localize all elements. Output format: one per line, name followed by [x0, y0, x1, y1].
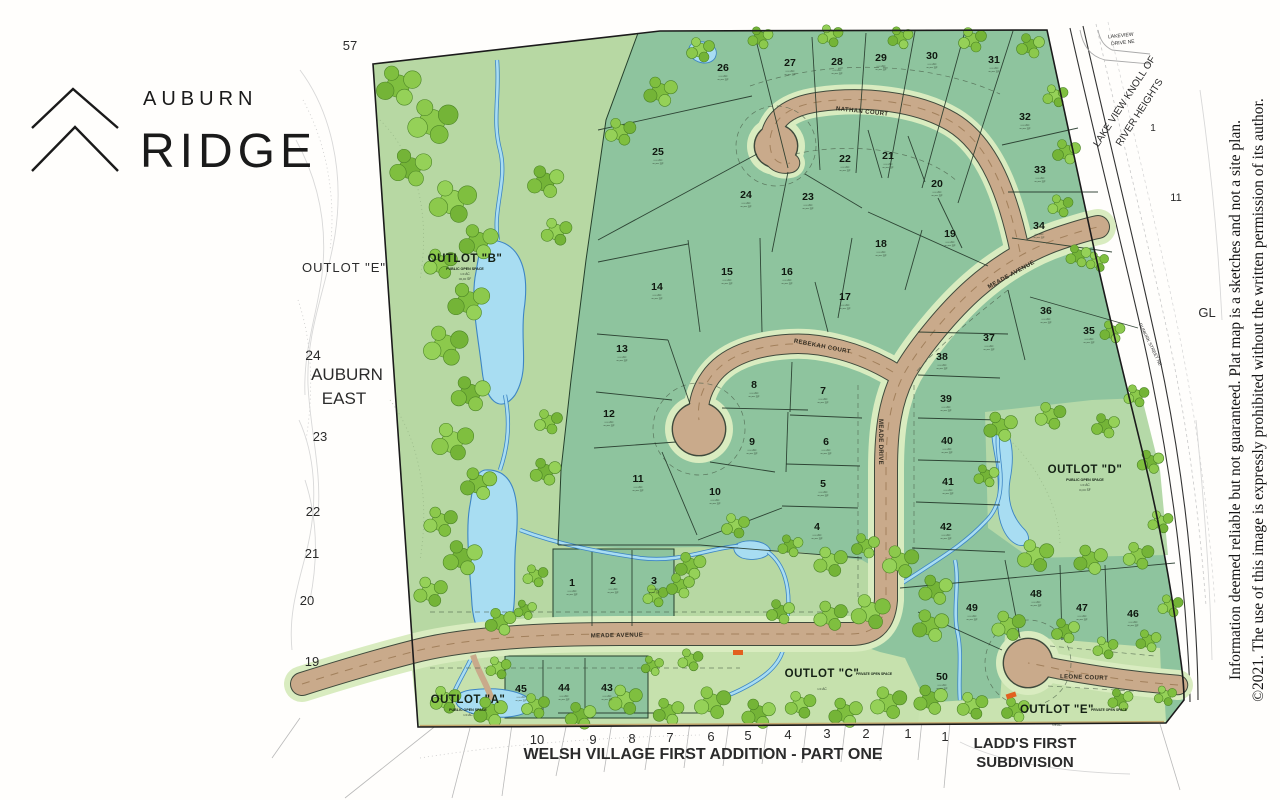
- lot-number: 25: [652, 146, 664, 158]
- outlot-note: PUBLIC OPEN SPACE: [449, 708, 487, 712]
- lot-number: 27: [784, 57, 796, 69]
- lot-number: 5: [820, 478, 826, 490]
- lot-area-hint: ••,••• SF: [875, 68, 886, 72]
- lot-area-hint: ••,••• SF: [1034, 180, 1045, 184]
- lot-number: 16: [781, 266, 793, 278]
- adjacent-label: 20: [300, 593, 314, 608]
- adjacent-label: 24: [305, 347, 321, 363]
- outlot-area-hint: •.•• AC: [463, 713, 473, 717]
- lot-number: 12: [603, 408, 615, 420]
- lot-area-hint: ••,••• SF: [648, 591, 659, 595]
- lot-area-hint: ••,••• SF: [802, 207, 813, 211]
- adjacent-label: 1: [904, 726, 911, 741]
- lot-area-hint: ••,••• SF: [1033, 236, 1044, 240]
- adjacent-label: WELSH VILLAGE FIRST ADDITION - PART ONE: [523, 746, 882, 763]
- adjacent-label: 23: [313, 429, 327, 444]
- lot-area-hint: ••,••• SF: [709, 502, 720, 506]
- outlot-label: OUTLOT "B": [428, 253, 503, 265]
- street-label: MEADE AVENUE: [591, 633, 644, 640]
- disclaimer: Information deemed reliable but not guar…: [1224, 0, 1280, 800]
- lot-number: 28: [831, 56, 843, 68]
- lot-area-hint: ••,••• SF: [784, 73, 795, 77]
- logo-word-auburn: AUBURN: [143, 88, 257, 111]
- adjacent-label: 22: [306, 504, 320, 519]
- lot-area-hint: ••,••• SF: [558, 698, 569, 702]
- outlot-note: PRIVATE OPEN SPACE: [856, 672, 893, 676]
- lot-area-hint: ••,••• SF: [936, 367, 947, 371]
- adjacent-label: 57: [343, 38, 357, 53]
- adjacent-label: 2: [862, 726, 869, 741]
- outlot-note: PUBLIC OPEN SPACE: [1066, 478, 1104, 482]
- lot-area-hint: ••,••• SF: [632, 489, 643, 493]
- lot-area-hint: ••,••• SF: [942, 492, 953, 496]
- lot-area-hint: ••,••• SF: [817, 401, 828, 405]
- outlot-area-hint: •.•• AC: [817, 687, 827, 691]
- adjacent-label: 4: [784, 727, 791, 742]
- logo-word-ridge: RIDGE: [140, 124, 317, 179]
- lot-area-hint: ••,••• SF: [839, 169, 850, 173]
- adjacent-label: 21: [305, 546, 319, 561]
- lot-area-hint: ••,••• SF: [926, 66, 937, 70]
- lot-number: 19: [944, 228, 956, 240]
- lot-number: 2: [610, 575, 616, 587]
- lot-area-hint: ••,••• SF: [940, 537, 951, 541]
- outlot-label: OUTLOT "E": [1020, 704, 1094, 716]
- lot-area-hint: ••,••• SF: [940, 409, 951, 413]
- lot-number: 48: [1030, 588, 1042, 600]
- adjacent-label: 1: [1150, 123, 1156, 134]
- lot-number: 4: [814, 521, 820, 533]
- lot-area-hint: ••,••• SF: [566, 593, 577, 597]
- outlot-label: OUTLOT "C": [785, 668, 860, 680]
- lot-number: 14: [651, 281, 663, 293]
- lot-number: 50: [936, 671, 948, 683]
- lot-number: 9: [749, 436, 755, 448]
- lot-number: 13: [616, 343, 628, 355]
- lot-number: 20: [931, 178, 943, 190]
- adjacent-label: 8: [628, 731, 635, 746]
- outlot-label: OUTLOT "A": [431, 694, 506, 706]
- lot-area-hint: ••,••• SF: [817, 494, 828, 498]
- adjacent-label: 10: [530, 732, 544, 747]
- adjacent-label: LADD'S FIRST: [974, 735, 1077, 752]
- lot-area-hint: ••,••• SF: [839, 307, 850, 311]
- lot-number: 40: [941, 435, 953, 447]
- adjacent-label: DUNKIRK STREET NE: [1138, 322, 1163, 366]
- lot-number: 34: [1033, 220, 1045, 232]
- lot-area-hint: ••,••• SF: [740, 205, 751, 209]
- lot-number: 37: [983, 332, 995, 344]
- lot-number: 29: [875, 52, 887, 64]
- lot-area-hint: ••,••• SF: [941, 451, 952, 455]
- lot-number: 31: [988, 54, 1000, 66]
- lot-area-hint: ••,••• SF: [748, 395, 759, 399]
- lot-number: 43: [601, 682, 613, 694]
- lot-area-hint: ••,••• SF: [944, 244, 955, 248]
- lot-number: 49: [966, 602, 978, 614]
- lot-number: 44: [558, 682, 570, 694]
- lot-number: 36: [1040, 305, 1052, 317]
- chevron-logo-icon: [30, 86, 122, 178]
- adjacent-label: 6: [707, 729, 714, 744]
- adjacent-label: DRIVE NE: [1111, 39, 1136, 48]
- plat-map-page: 1•.•• AC••,••• SF2•.•• AC••,••• SF3•.•• …: [0, 0, 1280, 800]
- lot-area-hint: ••,••• SF: [1040, 321, 1051, 325]
- lot-area-hint: ••,••• SF: [1076, 618, 1087, 622]
- disclaimer-line-1: Information deemed reliable but not guar…: [1224, 0, 1247, 800]
- lot-number: 11: [632, 473, 643, 485]
- lot-area-hint: ••,••• SF: [988, 70, 999, 74]
- lot-number: 17: [839, 291, 851, 303]
- adjacent-label: OUTLOT "E": [302, 260, 386, 275]
- lot-area-hint: ••,••• SF: [746, 452, 757, 456]
- lot-number: 45: [515, 683, 527, 695]
- lot-number: 39: [940, 393, 952, 405]
- lot-number: 6: [823, 436, 829, 448]
- street-label: MEADE DRIVE: [877, 419, 883, 465]
- lot-area-hint: ••,••• SF: [882, 166, 893, 170]
- lot-number: 32: [1019, 111, 1031, 123]
- lot-number: 41: [942, 476, 954, 488]
- lot-number: 21: [882, 150, 894, 162]
- lot-area-hint: ••,••• SF: [652, 162, 663, 166]
- outlot-area-hint: •.•• AC: [1080, 483, 1090, 487]
- lot-area-hint: ••,••• SF: [983, 348, 994, 352]
- lot-number: 10: [709, 486, 721, 498]
- adjacent-label: EAST: [322, 389, 366, 408]
- lot-area-hint: ••,••• SF: [601, 698, 612, 702]
- lot-area-hint: ••,••• SF: [616, 359, 627, 363]
- lot-area-hint: ••,••• SF: [607, 591, 618, 595]
- lot-number: 26: [717, 62, 729, 74]
- lot-number: 18: [875, 238, 887, 250]
- lot-number: 46: [1127, 608, 1139, 620]
- lot-number: 8: [751, 379, 757, 391]
- lot-area-hint: ••,••• SF: [515, 699, 526, 703]
- lot-number: 22: [839, 153, 851, 165]
- adjacent-label: 9: [589, 732, 596, 747]
- adjacent-label: AUBURN: [311, 365, 383, 384]
- lot-number: 23: [802, 191, 814, 203]
- outlot-area-hint: ••,••• SF: [1079, 488, 1090, 492]
- outlot-area-hint: •••,••• SF: [459, 277, 472, 281]
- lot-number: 15: [721, 266, 733, 278]
- adjacent-label: 1: [941, 729, 948, 744]
- lot-area-hint: ••,••• SF: [1083, 341, 1094, 345]
- lot-number: 24: [740, 189, 752, 201]
- lot-area-hint: ••,••• SF: [936, 687, 947, 691]
- lot-number: 35: [1083, 325, 1095, 337]
- adjacent-label: SUBDIVISION: [976, 754, 1074, 771]
- outlot-area-hint: •.•• AC: [460, 272, 470, 276]
- road-marker: [733, 650, 743, 655]
- lot-area-hint: ••,••• SF: [931, 194, 942, 198]
- lot-area-hint: ••,••• SF: [721, 282, 732, 286]
- lot-area-hint: ••,••• SF: [651, 297, 662, 301]
- lot-area-hint: ••,••• SF: [603, 424, 614, 428]
- adjacent-label: GL: [1198, 305, 1215, 320]
- lot-number: 47: [1076, 602, 1088, 614]
- lot-area-hint: ••,••• SF: [1030, 604, 1041, 608]
- lot-area-hint: ••,••• SF: [717, 78, 728, 82]
- lot-area-hint: ••,••• SF: [1019, 127, 1030, 131]
- lot-number: 38: [936, 351, 948, 363]
- lot-number: 42: [940, 521, 952, 533]
- lot-number: 1: [569, 577, 575, 589]
- lot-area-hint: ••,••• SF: [831, 72, 842, 76]
- adjacent-label: 19: [305, 654, 319, 669]
- auburn-ridge-logo: AUBURN RIDGE: [30, 86, 390, 206]
- lot-area-hint: ••,••• SF: [966, 618, 977, 622]
- outlot-note: PRIVATE OPEN SPACE: [1091, 708, 1128, 712]
- lot-number: 33: [1034, 164, 1046, 176]
- lot-area-hint: ••,••• SF: [811, 537, 822, 541]
- lot-number: 30: [926, 50, 938, 62]
- lot-area-hint: ••,••• SF: [1127, 624, 1138, 628]
- adjacent-label: 11: [1170, 192, 1181, 204]
- lot-area-hint: ••,••• SF: [781, 282, 792, 286]
- lot-number: 3: [651, 575, 657, 587]
- disclaimer-line-2: ©2021. The use of this image is expressl…: [1247, 0, 1270, 800]
- lot-area-hint: ••,••• SF: [875, 254, 886, 258]
- outlot-area-hint: •.•• AC: [1052, 723, 1062, 727]
- adjacent-label: 7: [666, 730, 673, 745]
- lot-number: 7: [820, 385, 826, 397]
- lot-area-hint: ••,••• SF: [820, 452, 831, 456]
- outlot-label: OUTLOT "D": [1048, 464, 1123, 476]
- adjacent-label: 5: [744, 728, 751, 743]
- adjacent-label: 3: [823, 726, 830, 741]
- outlot-note: PUBLIC OPEN SPACE: [446, 267, 484, 271]
